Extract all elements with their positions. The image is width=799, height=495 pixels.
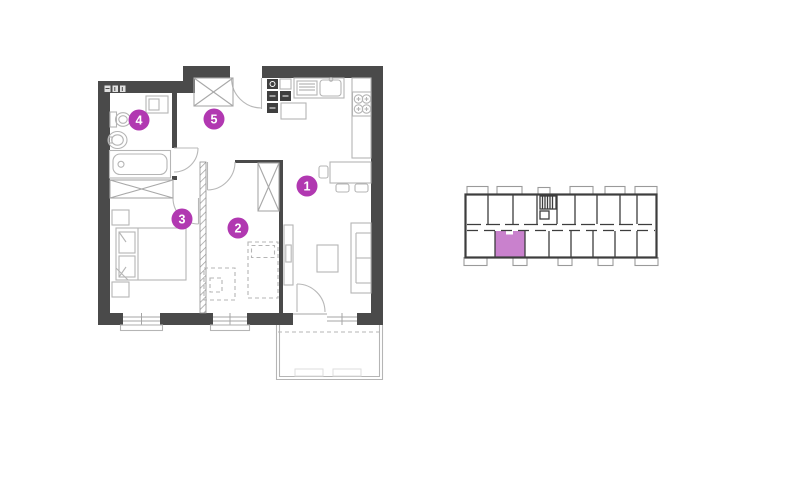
- washer-icon: [146, 96, 168, 113]
- planned-bed-icon: [248, 242, 278, 298]
- wardrobe-hall-icon: [194, 78, 233, 106]
- closet-icon: [110, 180, 173, 198]
- overview-building-outline: [466, 195, 657, 258]
- nightstand-bottom-icon: [112, 282, 129, 297]
- highlighted-unit-door-gap: [506, 231, 513, 235]
- floor-plan-page: 1 2 3 4 5: [0, 0, 799, 495]
- balcony-door-icon: [297, 284, 325, 312]
- partition-wall-hatched: [200, 162, 206, 313]
- fridge-icon: [281, 103, 306, 119]
- overview-balconies-bottom: [464, 258, 658, 266]
- room-marker-5[interactable]: 5: [204, 109, 225, 130]
- balcony-icon: [277, 325, 383, 380]
- stove-icon: [353, 92, 372, 116]
- room-marker-1[interactable]: 1: [297, 176, 318, 197]
- double-bed-icon: [116, 228, 186, 280]
- interior-walls: [172, 93, 283, 313]
- electrical-panel-icon: [267, 79, 291, 113]
- sofa-icon: [351, 223, 371, 293]
- bedroom2-door-icon: [208, 162, 236, 190]
- utility-meters-icon: [105, 86, 126, 93]
- room-marker-5-label: 5: [211, 113, 218, 127]
- planned-desk-icon: [204, 268, 235, 300]
- dining-table-icon: [319, 158, 371, 192]
- room-marker-2-label: 2: [235, 222, 242, 236]
- overview-stairwell-icon: [540, 196, 556, 219]
- room-marker-4-label: 4: [136, 114, 143, 128]
- room-marker-2[interactable]: 2: [228, 218, 249, 239]
- entrance-door-icon: [232, 78, 262, 109]
- toilet-icon: [110, 112, 131, 127]
- building-overview: [464, 187, 658, 266]
- exterior-walls: [98, 66, 383, 325]
- overview-corridor: [467, 225, 655, 231]
- tv-unit-icon: [284, 225, 293, 285]
- room-markers: 1 2 3 4 5: [129, 109, 318, 239]
- wardrobe-bedroom2-icon: [258, 163, 279, 211]
- room-marker-1-label: 1: [304, 180, 311, 194]
- wall-openings: [123, 65, 357, 326]
- overview-balconies-top: [467, 187, 657, 195]
- sink-icon: [108, 132, 127, 149]
- nightstand-top-icon: [112, 210, 129, 225]
- room-marker-3-label: 3: [179, 213, 186, 227]
- kitchen-sink-icon: [294, 78, 344, 98]
- room-marker-3[interactable]: 3: [172, 209, 193, 230]
- bathroom-door-icon: [174, 148, 198, 172]
- floor-plan-canvas: 1 2 3 4 5: [0, 0, 799, 495]
- overview-top-units: [488, 195, 637, 224]
- kitchen-counter-icon: [352, 78, 371, 158]
- bathtub-icon: [110, 151, 171, 179]
- highlighted-unit[interactable]: [496, 231, 526, 257]
- coffee-table-icon: [317, 245, 338, 272]
- room-marker-4[interactable]: 4: [129, 110, 150, 131]
